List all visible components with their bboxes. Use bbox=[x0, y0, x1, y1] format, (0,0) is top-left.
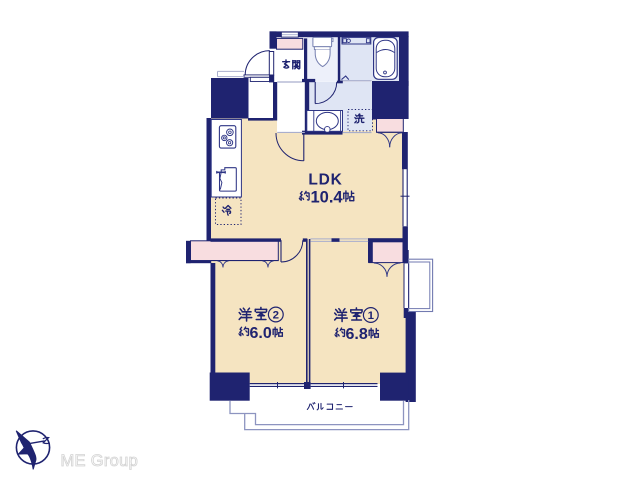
svg-text:1: 1 bbox=[368, 310, 375, 322]
svg-text:6.0: 6.0 bbox=[250, 325, 272, 342]
svg-text:6.8: 6.8 bbox=[346, 326, 368, 343]
svg-text:10.4: 10.4 bbox=[311, 189, 344, 207]
svg-text:ME Group: ME Group bbox=[61, 452, 139, 470]
svg-text:LDK: LDK bbox=[308, 172, 342, 189]
svg-text:2: 2 bbox=[273, 310, 279, 322]
